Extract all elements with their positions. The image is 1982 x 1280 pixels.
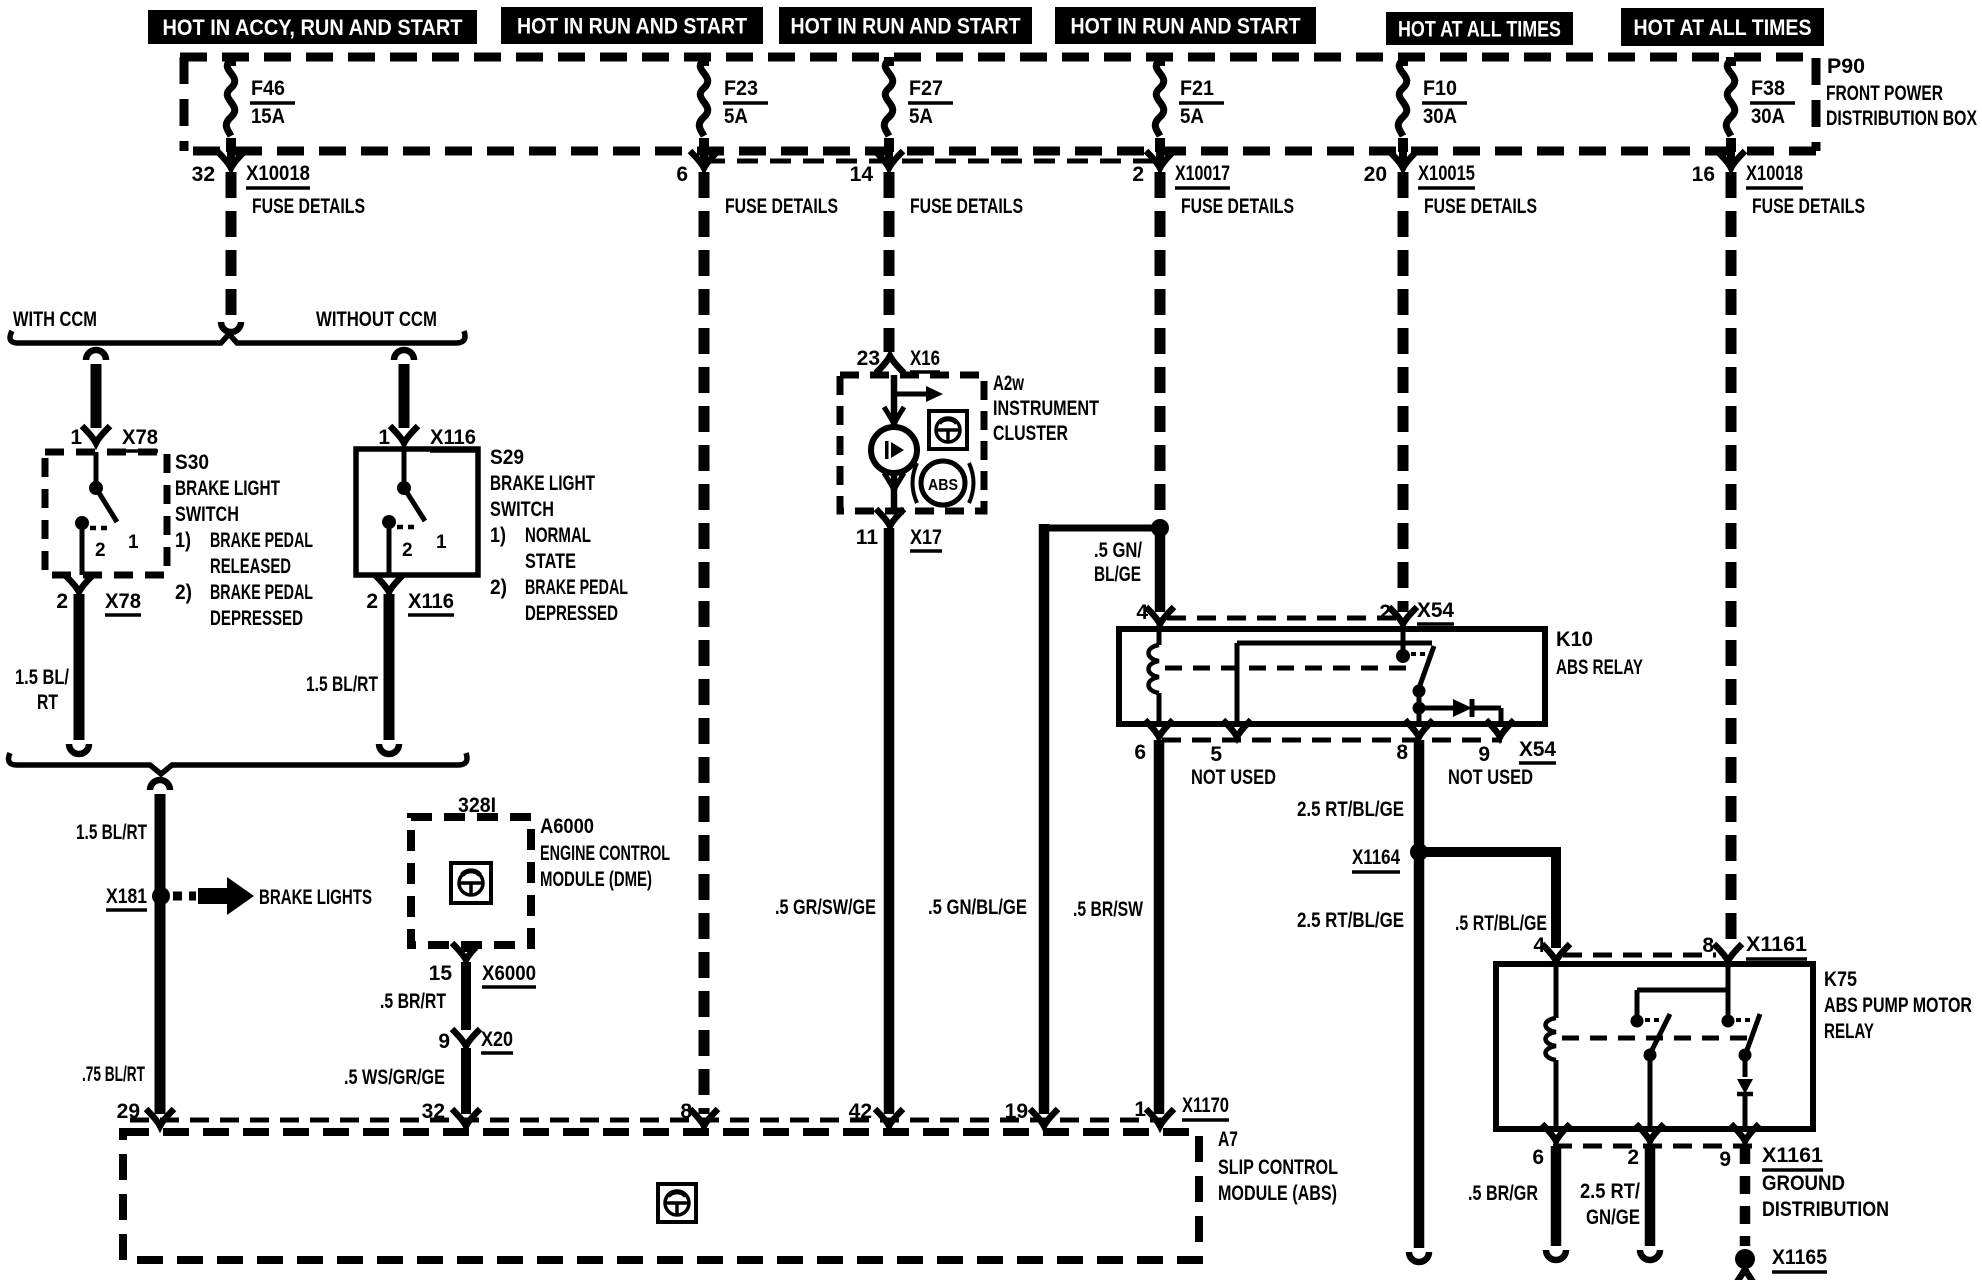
svg-text:NOT USED: NOT USED — [1191, 766, 1276, 789]
svg-text:2: 2 — [56, 590, 68, 613]
svg-text:FUSE DETAILS: FUSE DETAILS — [910, 195, 1023, 218]
svg-text:.5 BR/RT: .5 BR/RT — [380, 990, 446, 1013]
svg-text:4: 4 — [1533, 934, 1545, 957]
svg-text:2: 2 — [402, 540, 413, 561]
svg-text:20: 20 — [1364, 163, 1387, 186]
svg-text:FRONT POWER: FRONT POWER — [1826, 82, 1943, 105]
svg-text:A7: A7 — [1218, 1128, 1238, 1151]
svg-text:X1164: X1164 — [1352, 846, 1400, 869]
svg-text:NORMAL: NORMAL — [525, 524, 591, 547]
svg-text:X10018: X10018 — [1746, 162, 1803, 185]
svg-text:A2w: A2w — [993, 372, 1024, 395]
svg-text:6: 6 — [676, 163, 688, 186]
svg-text:5A: 5A — [909, 105, 933, 128]
svg-text:11: 11 — [856, 526, 879, 549]
svg-text:X20: X20 — [481, 1028, 513, 1051]
svg-text:ABS: ABS — [928, 477, 958, 494]
svg-text:1): 1) — [175, 529, 191, 552]
svg-text:F38: F38 — [1751, 77, 1785, 100]
svg-text:GN/GE: GN/GE — [1586, 1206, 1640, 1229]
svg-text:X10015: X10015 — [1418, 162, 1475, 185]
svg-text:X1161: X1161 — [1762, 1144, 1823, 1167]
svg-text:2: 2 — [366, 590, 378, 613]
svg-text:DEPRESSED: DEPRESSED — [210, 607, 303, 630]
svg-text:HOT AT ALL TIMES: HOT AT ALL TIMES — [1634, 15, 1812, 40]
svg-text:F21: F21 — [1180, 77, 1214, 100]
svg-text:.5 GR/SW/GE: .5 GR/SW/GE — [775, 896, 876, 919]
svg-text:ABS RELAY: ABS RELAY — [1556, 656, 1643, 679]
svg-text:RELAY: RELAY — [1824, 1020, 1874, 1043]
svg-text:F10: F10 — [1423, 77, 1457, 100]
svg-text:F23: F23 — [724, 77, 758, 100]
svg-text:FUSE DETAILS: FUSE DETAILS — [1752, 195, 1865, 218]
svg-text:MODULE (ABS): MODULE (ABS) — [1218, 1182, 1337, 1205]
svg-text:RT: RT — [37, 691, 58, 714]
svg-text:1: 1 — [378, 426, 390, 449]
svg-text:9: 9 — [1478, 743, 1490, 766]
svg-text:BRAKE PEDAL: BRAKE PEDAL — [210, 529, 313, 552]
svg-text:6: 6 — [1532, 1146, 1544, 1169]
svg-text:P90: P90 — [1827, 55, 1865, 78]
svg-text:.5 GN/: .5 GN/ — [1094, 539, 1142, 562]
svg-text:K75: K75 — [1824, 968, 1857, 991]
svg-text:9: 9 — [438, 1030, 450, 1053]
svg-text:FUSE DETAILS: FUSE DETAILS — [1181, 195, 1294, 218]
svg-text:BRAKE PEDAL: BRAKE PEDAL — [525, 576, 628, 599]
svg-text:8: 8 — [1396, 741, 1408, 764]
svg-text:HOT IN ACCY, RUN AND START: HOT IN ACCY, RUN AND START — [163, 15, 464, 40]
svg-text:BRAKE LIGHT: BRAKE LIGHT — [175, 477, 280, 500]
svg-text:4: 4 — [1136, 601, 1148, 624]
svg-text:30A: 30A — [1423, 105, 1457, 128]
svg-text:A6000: A6000 — [540, 815, 594, 838]
svg-text:DISTRIBUTION: DISTRIBUTION — [1762, 1198, 1889, 1221]
svg-text:8: 8 — [1702, 934, 1714, 957]
svg-text:FUSE DETAILS: FUSE DETAILS — [1424, 195, 1537, 218]
svg-text:.5 RT/BL/GE: .5 RT/BL/GE — [1455, 912, 1547, 935]
svg-text:ENGINE CONTROL: ENGINE CONTROL — [540, 842, 670, 865]
svg-text:X116: X116 — [408, 590, 454, 613]
svg-text:HOT IN RUN AND START: HOT IN RUN AND START — [1071, 14, 1301, 39]
svg-text:29: 29 — [117, 1100, 140, 1123]
svg-text:DISTRIBUTION BOX: DISTRIBUTION BOX — [1826, 107, 1977, 130]
svg-text:.5 GN/BL/GE: .5 GN/BL/GE — [928, 896, 1027, 919]
svg-text:X78: X78 — [122, 426, 158, 449]
svg-text:K10: K10 — [1556, 628, 1593, 651]
svg-text:X1161: X1161 — [1746, 933, 1807, 956]
svg-text:DEPRESSED: DEPRESSED — [525, 602, 618, 625]
svg-text:INSTRUMENT: INSTRUMENT — [993, 397, 1099, 420]
svg-text:X16: X16 — [910, 347, 940, 370]
svg-text:X116: X116 — [430, 426, 476, 449]
svg-text:X54: X54 — [1519, 738, 1556, 761]
svg-text:GROUND: GROUND — [1762, 1172, 1845, 1195]
svg-text:WITHOUT CCM: WITHOUT CCM — [316, 308, 437, 331]
svg-text:1): 1) — [490, 524, 506, 547]
svg-text:X78: X78 — [105, 590, 141, 613]
svg-text:16: 16 — [1692, 163, 1715, 186]
svg-text:1: 1 — [436, 532, 447, 553]
svg-text:5: 5 — [1210, 743, 1222, 766]
svg-text:SWITCH: SWITCH — [490, 498, 554, 521]
svg-text:S30: S30 — [175, 451, 209, 474]
svg-text:1.5 BL/RT: 1.5 BL/RT — [76, 821, 147, 844]
svg-text:MODULE (DME): MODULE (DME) — [540, 868, 652, 891]
svg-text:2: 2 — [95, 540, 106, 561]
svg-text:6: 6 — [1134, 741, 1146, 764]
svg-text:.75 BL/RT: .75 BL/RT — [82, 1063, 145, 1086]
svg-text:2.5 RT/BL/GE: 2.5 RT/BL/GE — [1297, 798, 1404, 821]
svg-text:WITH CCM: WITH CCM — [13, 308, 97, 331]
svg-text:X181: X181 — [106, 885, 147, 908]
svg-text:STATE: STATE — [525, 550, 576, 573]
svg-text:.5 BR/SW: .5 BR/SW — [1073, 898, 1143, 921]
svg-text:F46: F46 — [251, 77, 285, 100]
svg-text:CLUSTER: CLUSTER — [993, 422, 1068, 445]
svg-text:2.5 RT/: 2.5 RT/ — [1580, 1180, 1640, 1203]
svg-text:15: 15 — [429, 962, 453, 985]
svg-text:30A: 30A — [1751, 105, 1785, 128]
svg-text:X6000: X6000 — [482, 962, 536, 985]
svg-text:2): 2) — [175, 581, 192, 604]
svg-text:2.5 RT/BL/GE: 2.5 RT/BL/GE — [1297, 909, 1404, 932]
svg-text:BRAKE LIGHTS: BRAKE LIGHTS — [259, 886, 372, 909]
svg-text:32: 32 — [192, 163, 215, 186]
svg-text:RELEASED: RELEASED — [210, 555, 291, 578]
svg-text:1: 1 — [70, 426, 82, 449]
svg-text:SWITCH: SWITCH — [175, 503, 239, 526]
svg-text:2: 2 — [1132, 163, 1144, 186]
svg-text:.5 BR/GR: .5 BR/GR — [1468, 1182, 1538, 1205]
svg-text:X10018: X10018 — [246, 162, 310, 185]
svg-text:5A: 5A — [1180, 105, 1204, 128]
svg-text:X10017: X10017 — [1175, 162, 1230, 185]
svg-text:S29: S29 — [490, 446, 524, 469]
svg-text:NOT USED: NOT USED — [1448, 766, 1533, 789]
svg-text:2): 2) — [490, 576, 507, 599]
svg-text:.5 WS/GR/GE: .5 WS/GR/GE — [344, 1066, 445, 1089]
svg-text:BRAKE LIGHT: BRAKE LIGHT — [490, 472, 595, 495]
svg-text:BRAKE PEDAL: BRAKE PEDAL — [210, 581, 313, 604]
svg-text:F27: F27 — [909, 77, 943, 100]
svg-text:1: 1 — [128, 532, 139, 553]
svg-text:ABS PUMP MOTOR: ABS PUMP MOTOR — [1824, 994, 1972, 1017]
svg-text:23: 23 — [857, 347, 880, 370]
svg-text:HOT IN RUN AND START: HOT IN RUN AND START — [791, 14, 1021, 39]
svg-text:1.5 BL/: 1.5 BL/ — [15, 666, 69, 689]
svg-text:14: 14 — [850, 163, 874, 186]
svg-text:FUSE DETAILS: FUSE DETAILS — [725, 195, 838, 218]
svg-text:1.5 BL/RT: 1.5 BL/RT — [306, 673, 378, 696]
svg-text:2: 2 — [1379, 601, 1391, 624]
svg-text:X54: X54 — [1417, 599, 1454, 622]
svg-text:15A: 15A — [251, 105, 285, 128]
svg-text:X17: X17 — [910, 526, 942, 549]
svg-text:9: 9 — [1719, 1148, 1731, 1171]
svg-text:5A: 5A — [724, 105, 748, 128]
svg-text:2: 2 — [1627, 1146, 1639, 1169]
svg-text:SLIP CONTROL: SLIP CONTROL — [1218, 1156, 1338, 1179]
svg-text:X1170: X1170 — [1182, 1094, 1229, 1117]
svg-text:HOT IN RUN AND START: HOT IN RUN AND START — [517, 14, 747, 39]
svg-text:X1165: X1165 — [1772, 1246, 1827, 1269]
svg-text:BL/GE: BL/GE — [1094, 563, 1141, 586]
svg-text:FUSE DETAILS: FUSE DETAILS — [252, 195, 365, 218]
svg-text:HOT AT ALL TIMES: HOT AT ALL TIMES — [1398, 17, 1561, 42]
